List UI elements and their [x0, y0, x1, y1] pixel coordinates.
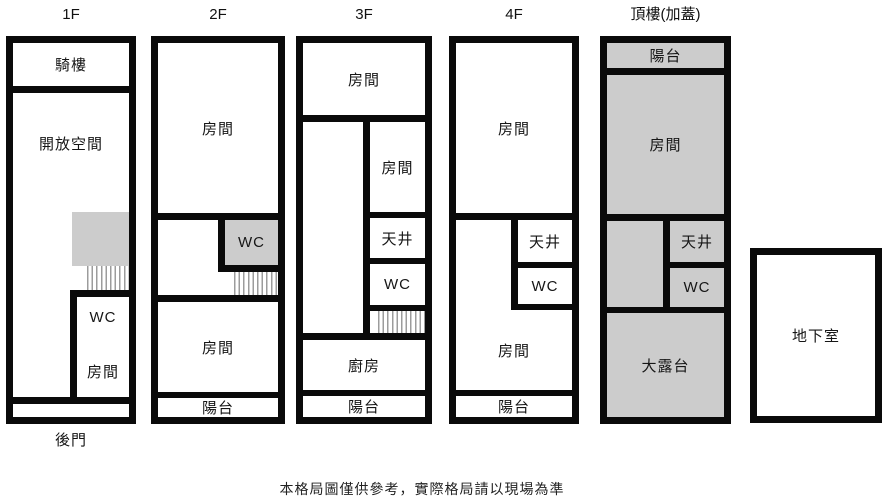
room-kitchen: 廚房 [303, 340, 425, 390]
back-door-label: 後門 [6, 429, 136, 450]
wall [218, 265, 278, 272]
plan-2f: 房間 WC 房間 陽台 [151, 36, 285, 424]
plan-1f-inner: 騎樓 開放空間 WC 房間 [13, 43, 129, 417]
floor-title-1f: 1F [6, 6, 136, 24]
plan-2f-inner: 房間 WC 房間 陽台 [158, 43, 278, 417]
stairs-hatch [234, 272, 278, 295]
stair-landing [72, 212, 129, 266]
stairs-hatch [87, 266, 129, 290]
room-lightwell: 天井 [518, 220, 572, 262]
plan-4f: 房間 天井 WC 房間 陽台 [449, 36, 579, 424]
wall [363, 122, 370, 333]
room-bedroom: 房間 [370, 122, 425, 212]
wall [303, 333, 425, 340]
floor-title-3f: 3F [296, 6, 432, 24]
wall [456, 213, 572, 220]
floor-title-roof: 頂樓(加蓋) [600, 6, 731, 24]
room-balcony: 陽台 [158, 398, 278, 417]
stairs-hatch [378, 311, 425, 333]
room-wc: WC [77, 290, 129, 345]
room-balcony: 陽台 [456, 396, 572, 417]
wall [158, 213, 278, 220]
plan-1f: 騎樓 開放空間 WC 房間 [6, 36, 136, 424]
wall [303, 115, 425, 122]
wall [663, 221, 670, 307]
room-bedroom: 房間 [456, 43, 572, 213]
room-wc: WC [225, 220, 278, 265]
wall [70, 290, 77, 397]
room-bedroom: 房間 [158, 43, 278, 213]
floorplan-diagram: 1F 2F 3F 4F 頂樓(加蓋) 騎樓 開放空間 WC 房間 後門 房間 W… [0, 0, 888, 501]
room-bedroom: 房間 [158, 302, 278, 392]
floor-title-4f: 4F [449, 6, 579, 24]
wall [607, 214, 724, 221]
room-bedroom: 房間 [456, 310, 572, 390]
plan-basement: 地下室 [750, 248, 882, 423]
room-bedroom: 房間 [607, 75, 724, 214]
room-lightwell: 天井 [670, 221, 724, 262]
room-bedroom: 房間 [303, 43, 425, 115]
room-open-space: 開放空間 [13, 93, 129, 193]
disclaimer-caption: 本格局圖僅供參考，實際格局請以現場為準 [0, 479, 844, 499]
wall [158, 295, 278, 302]
plan-rooftop-inner: 陽台 房間 天井 WC 大露台 [607, 43, 724, 417]
room-balcony: 陽台 [607, 43, 724, 68]
room-lightwell: 天井 [370, 218, 425, 258]
plan-3f-inner: 房間 房間 天井 WC 廚房 陽台 [303, 43, 425, 417]
wall [607, 68, 724, 75]
room-balcony: 陽台 [303, 396, 425, 417]
room-wc: WC [518, 268, 572, 304]
room-basement: 地下室 [757, 255, 875, 416]
room-arcade: 騎樓 [13, 43, 129, 86]
plan-rooftop: 陽台 房間 天井 WC 大露台 [600, 36, 731, 424]
room-bedroom: 房間 [77, 345, 129, 397]
wall [13, 86, 129, 93]
wall [511, 220, 518, 310]
plan-4f-inner: 房間 天井 WC 房間 陽台 [456, 43, 572, 417]
plan-3f: 房間 房間 天井 WC 廚房 陽台 [296, 36, 432, 424]
room-terrace: 大露台 [607, 313, 724, 417]
wall [13, 397, 129, 404]
room-wc: WC [670, 268, 724, 307]
room-wc: WC [370, 264, 425, 305]
floor-title-2f: 2F [151, 6, 285, 24]
plan-basement-inner: 地下室 [757, 255, 875, 416]
